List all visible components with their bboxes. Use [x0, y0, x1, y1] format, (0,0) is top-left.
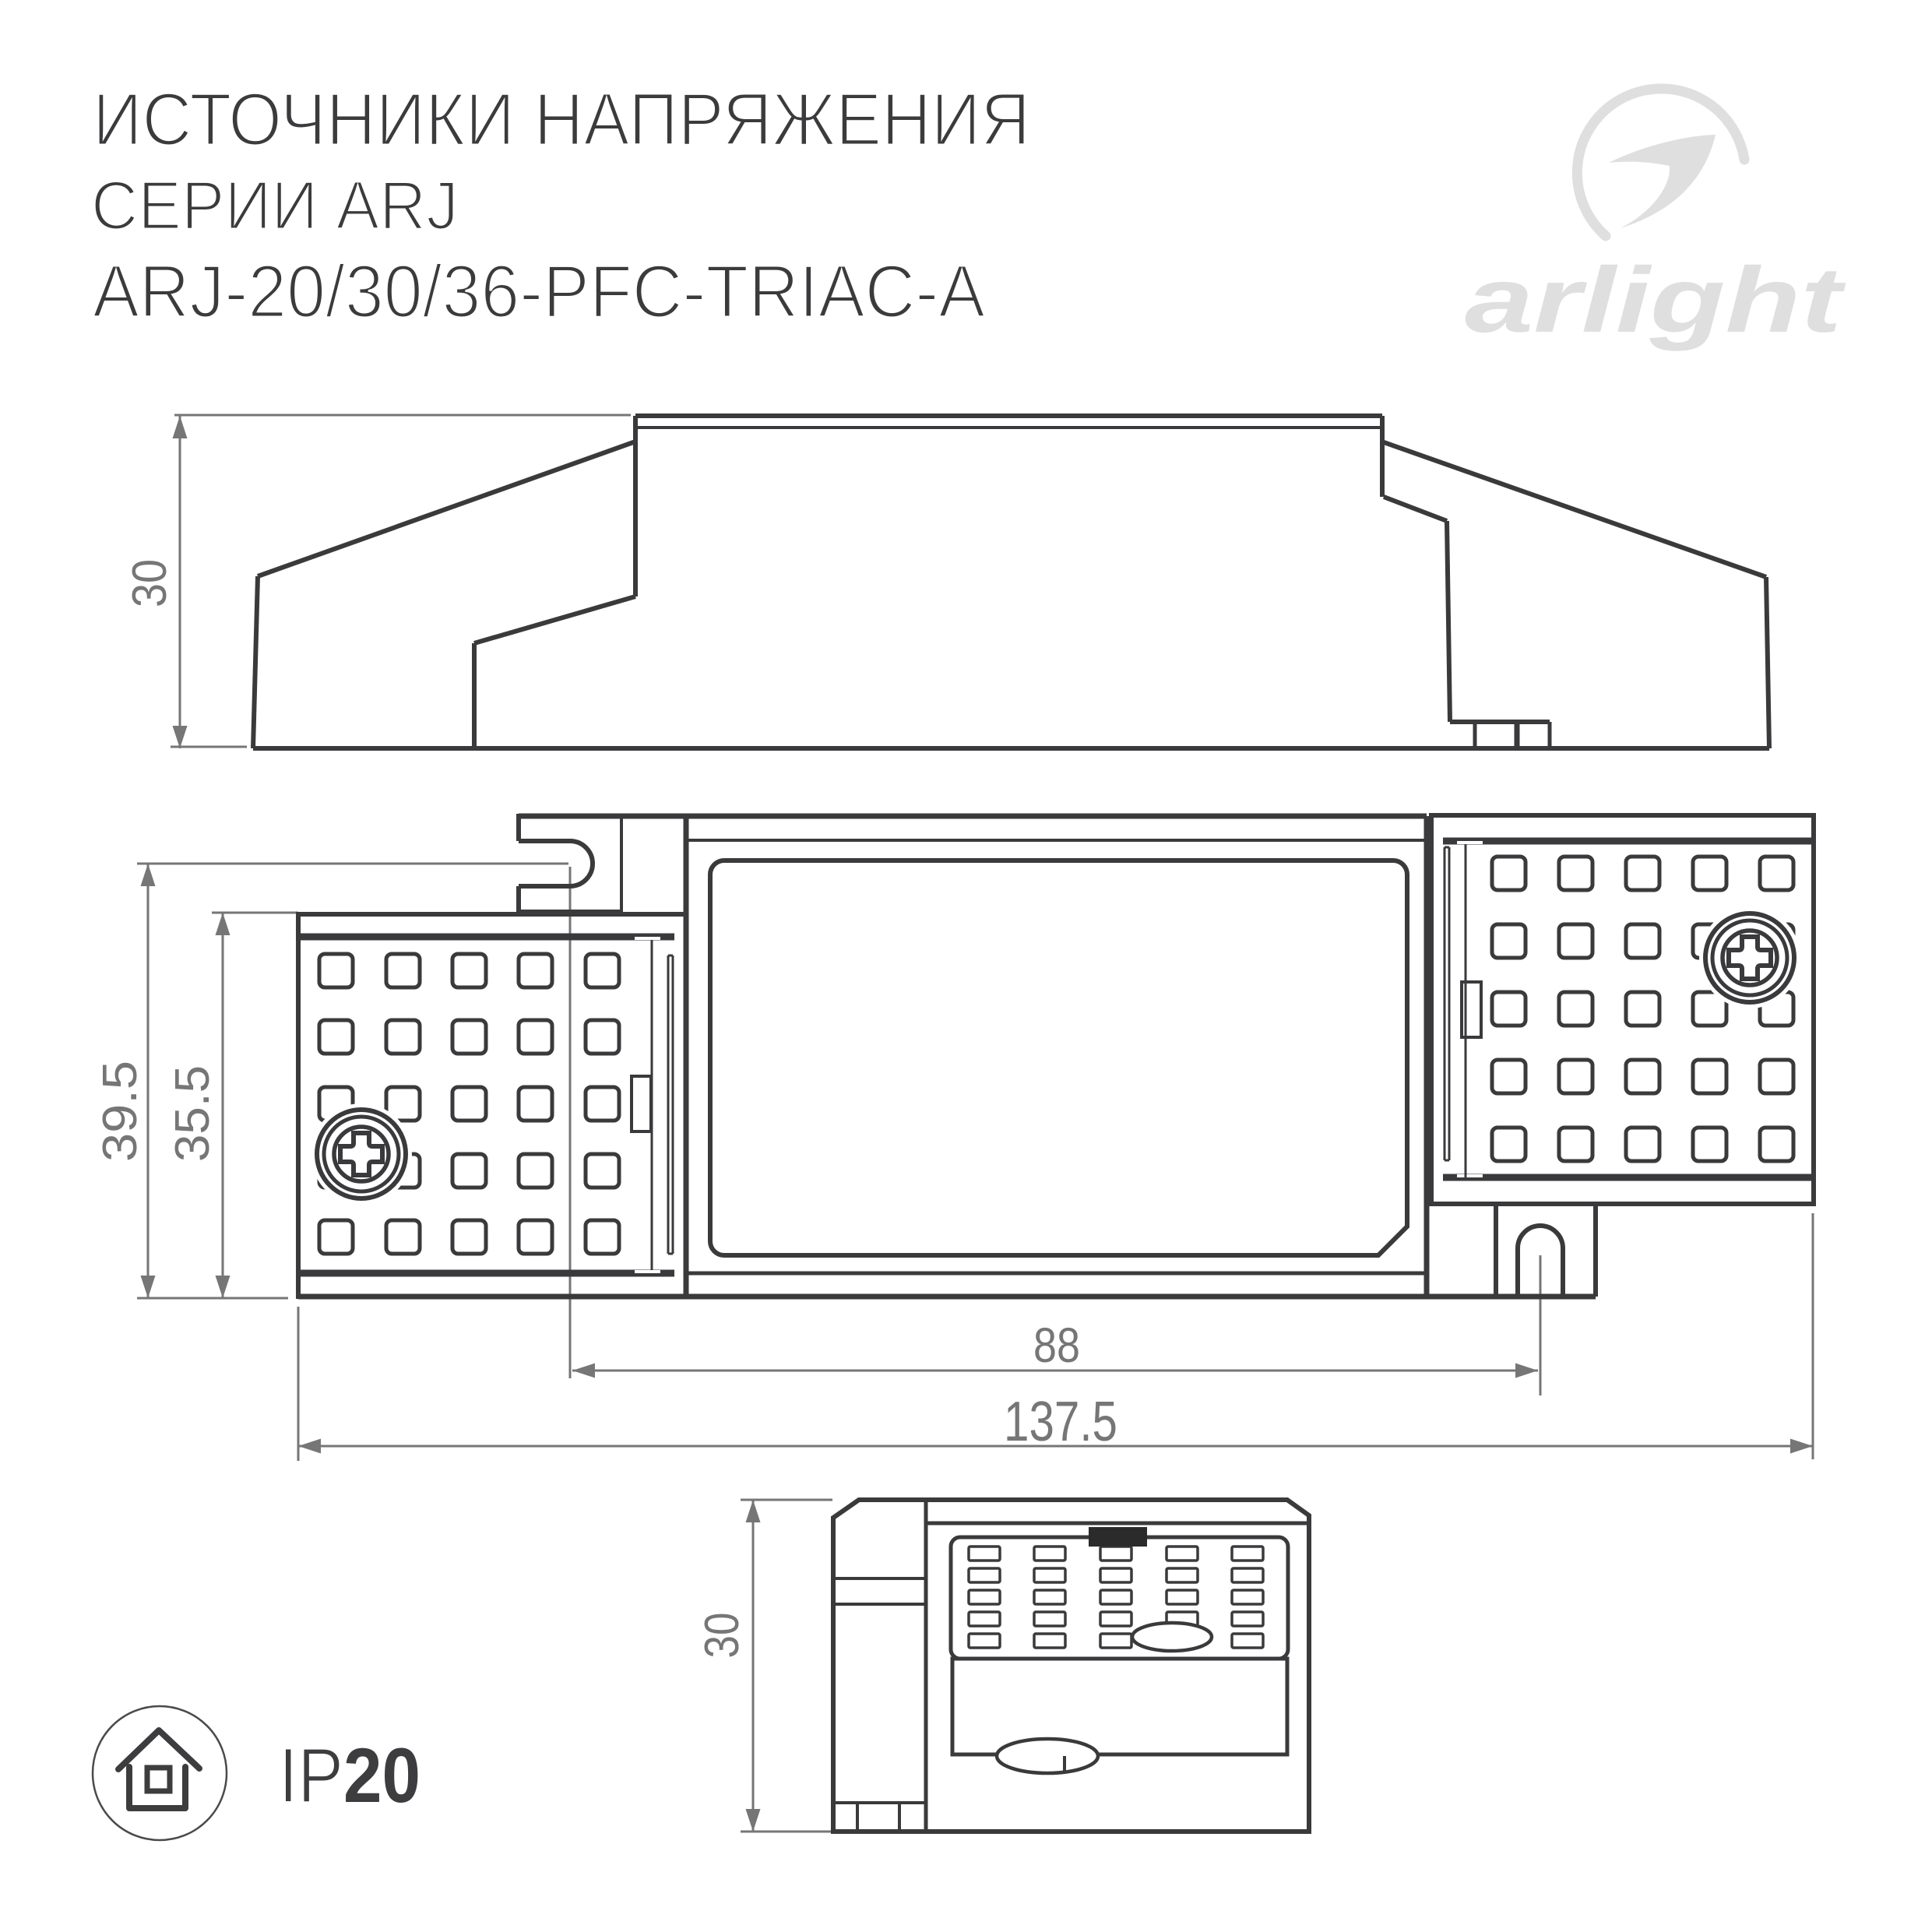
svg-text:arlight: arlight [1465, 248, 1846, 352]
svg-text:20: 20 [343, 1732, 421, 1818]
svg-text:35.5: 35.5 [166, 1065, 220, 1162]
svg-text:IP: IP [279, 1732, 343, 1818]
svg-text:30: 30 [695, 1613, 749, 1659]
svg-text:ИСТОЧНИКИ НАПРЯЖЕНИЯ: ИСТОЧНИКИ НАПРЯЖЕНИЯ [93, 78, 1030, 161]
svg-text:30: 30 [123, 559, 177, 607]
svg-text:39.5: 39.5 [93, 1061, 147, 1162]
svg-text:88: 88 [1033, 1318, 1080, 1373]
svg-text:ARJ-20/30/36-PFC-TRIAC-A: ARJ-20/30/36-PFC-TRIAC-A [93, 250, 985, 333]
svg-text:СЕРИИ ARJ: СЕРИИ ARJ [91, 167, 459, 244]
svg-text:137.5: 137.5 [1004, 1391, 1117, 1453]
